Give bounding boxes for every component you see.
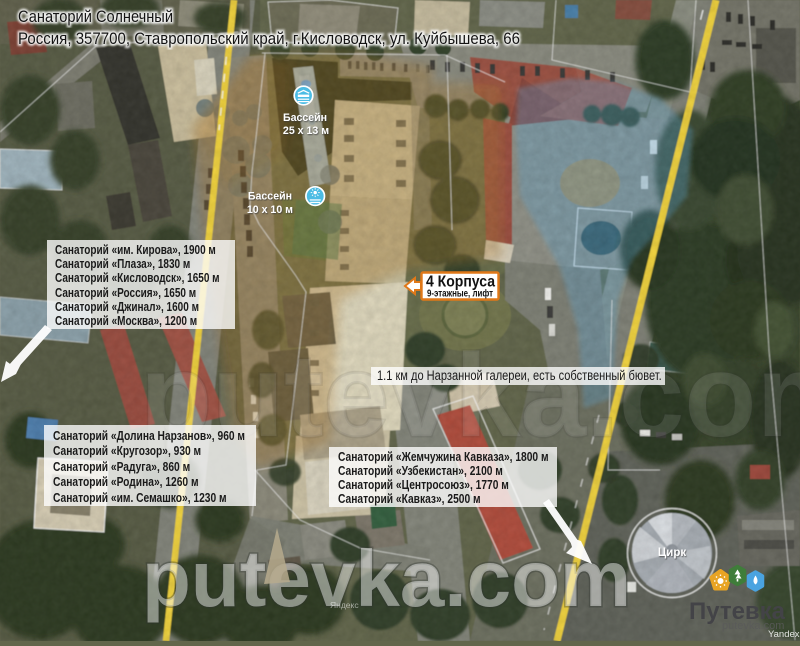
svg-text:Цирк: Цирк: [658, 547, 686, 559]
svg-text:Санаторий Солнечный: Санаторий Солнечный: [18, 7, 173, 26]
svg-text:25 х 13 м: 25 х 13 м: [283, 125, 329, 137]
svg-text:Yandex: Yandex: [768, 629, 800, 640]
svg-text:10 х 10 м: 10 х 10 м: [247, 204, 293, 216]
svg-text:Бассейн: Бассейн: [248, 191, 292, 203]
svg-text:Россия, 357700, Ставропольский: Россия, 357700, Ставропольский край, г.К…: [18, 29, 520, 48]
svg-text:Бассейн: Бассейн: [283, 112, 327, 124]
svg-text:putevka.com: putevka.com: [142, 534, 631, 623]
svg-text:Яндекс: Яндекс: [330, 600, 359, 610]
svg-text:9-этажные, лифт: 9-этажные, лифт: [427, 288, 493, 300]
